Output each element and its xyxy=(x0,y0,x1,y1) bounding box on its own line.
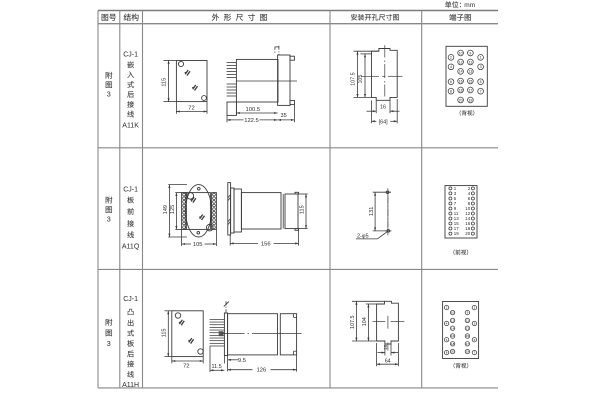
svg-text:CJ-1: CJ-1 xyxy=(123,186,138,193)
svg-text:115: 115 xyxy=(162,78,168,87)
svg-text:16: 16 xyxy=(380,105,386,111)
svg-text:16: 16 xyxy=(451,334,455,338)
svg-text:16: 16 xyxy=(459,79,463,83)
svg-text:6: 6 xyxy=(450,80,452,84)
svg-text:18: 18 xyxy=(459,88,463,92)
svg-text:3: 3 xyxy=(480,65,482,69)
svg-text:20: 20 xyxy=(451,350,455,354)
svg-text:104: 104 xyxy=(362,317,368,326)
svg-text:5: 5 xyxy=(480,80,482,84)
svg-text:11: 11 xyxy=(466,318,469,322)
svg-text:mm: mm xyxy=(464,2,475,9)
svg-text:CJ-1: CJ-1 xyxy=(123,296,138,303)
svg-text:107.5: 107.5 xyxy=(351,72,357,85)
svg-text:115: 115 xyxy=(299,205,305,214)
svg-text:3: 3 xyxy=(107,90,111,99)
svg-text:12: 12 xyxy=(459,60,463,64)
svg-text:2-φ5: 2-φ5 xyxy=(357,233,369,239)
svg-text:72: 72 xyxy=(183,363,189,369)
svg-text:9: 9 xyxy=(469,51,471,55)
svg-text:107.5: 107.5 xyxy=(350,315,356,329)
svg-text:2: 2 xyxy=(450,56,452,60)
svg-text:A11K: A11K xyxy=(122,122,139,129)
svg-text:149: 149 xyxy=(163,205,169,214)
svg-text:A11H: A11H xyxy=(122,382,139,389)
svg-text:11.5: 11.5 xyxy=(211,364,221,370)
svg-text:19: 19 xyxy=(468,98,472,102)
svg-text:131: 131 xyxy=(369,207,375,216)
svg-text:13: 13 xyxy=(468,70,472,74)
svg-text:126: 126 xyxy=(257,368,267,374)
svg-text:15: 15 xyxy=(468,79,472,83)
svg-text:35: 35 xyxy=(280,113,286,119)
svg-text:15: 15 xyxy=(466,334,470,338)
svg-text:19: 19 xyxy=(466,350,470,354)
svg-text:122.5: 122.5 xyxy=(244,118,259,124)
svg-text:72: 72 xyxy=(188,106,194,112)
svg-text:17: 17 xyxy=(468,88,472,92)
svg-text:64: 64 xyxy=(385,359,391,365)
svg-text:8: 8 xyxy=(450,89,452,93)
svg-text:105: 105 xyxy=(193,242,203,248)
svg-text:20: 20 xyxy=(465,231,470,236)
svg-text:1: 1 xyxy=(480,56,482,60)
svg-text:14: 14 xyxy=(459,70,463,74)
svg-text:16: 16 xyxy=(383,345,389,351)
svg-text:CJ-1: CJ-1 xyxy=(123,52,138,59)
svg-text:9.5: 9.5 xyxy=(238,358,246,364)
svg-text:A11Q: A11Q xyxy=(122,244,140,251)
svg-text:156: 156 xyxy=(261,242,271,248)
svg-text:10: 10 xyxy=(459,51,463,55)
svg-text:115: 115 xyxy=(162,329,168,338)
svg-text:12: 12 xyxy=(451,318,455,322)
svg-text:17: 17 xyxy=(466,342,470,346)
svg-text:125: 125 xyxy=(170,205,176,214)
svg-text:20: 20 xyxy=(459,98,463,102)
svg-text:14: 14 xyxy=(451,326,455,330)
svg-text:4: 4 xyxy=(450,65,452,69)
svg-text:3: 3 xyxy=(107,215,111,224)
svg-text:100.5: 100.5 xyxy=(246,107,261,113)
svg-text:7: 7 xyxy=(480,89,482,93)
svg-text:11: 11 xyxy=(469,60,473,64)
svg-text:[64]: [64] xyxy=(379,119,388,125)
svg-text:10: 10 xyxy=(451,311,455,315)
svg-text:18: 18 xyxy=(451,342,455,346)
svg-text:19: 19 xyxy=(454,231,459,236)
svg-text:3: 3 xyxy=(107,339,111,348)
svg-text:13: 13 xyxy=(466,326,470,330)
